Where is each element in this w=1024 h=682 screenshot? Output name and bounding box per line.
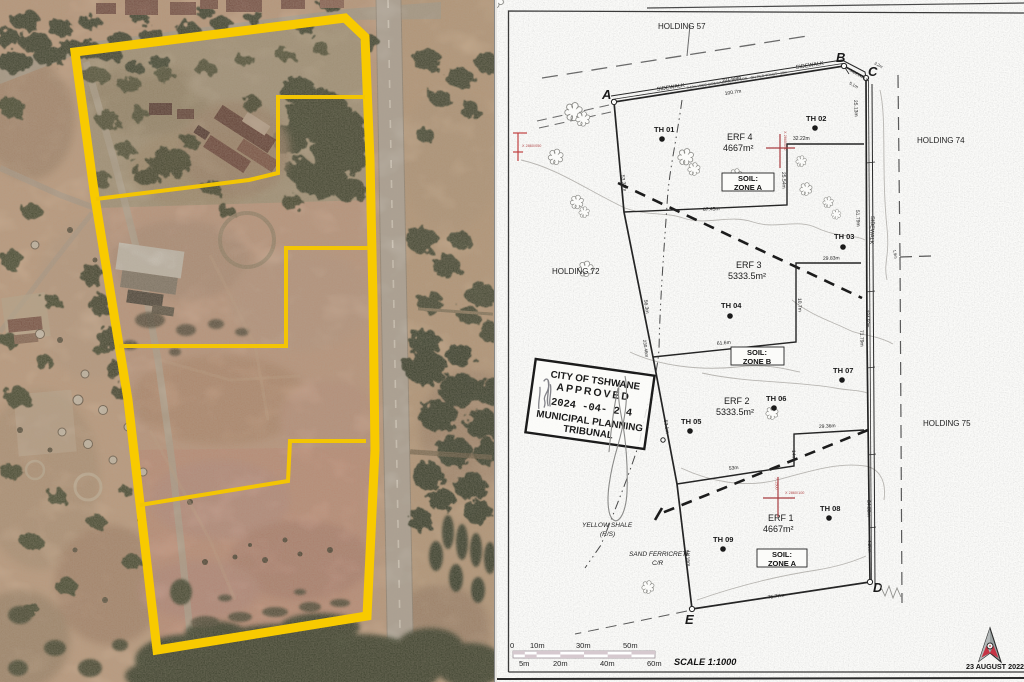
svg-text:29.83m: 29.83m bbox=[823, 255, 840, 262]
svg-text:TH 03: TH 03 bbox=[834, 232, 854, 241]
svg-text:SAND FERRICRETE: SAND FERRICRETE bbox=[629, 551, 691, 558]
svg-text:HOLDING 74: HOLDING 74 bbox=[917, 136, 965, 145]
svg-text:YELLOW SHALE: YELLOW SHALE bbox=[582, 522, 633, 529]
svg-text:25.54m: 25.54m bbox=[780, 172, 787, 189]
svg-text:ERF 4: ERF 4 bbox=[727, 132, 753, 142]
svg-text:5m: 5m bbox=[519, 659, 529, 668]
svg-text:ERF 1: ERF 1 bbox=[768, 513, 794, 523]
svg-text:40m: 40m bbox=[600, 659, 615, 668]
svg-text:SOIL:: SOIL: bbox=[747, 348, 767, 357]
svg-text:60m: 60m bbox=[647, 659, 662, 668]
svg-text:B: B bbox=[836, 50, 845, 65]
svg-text:10.7m: 10.7m bbox=[796, 298, 802, 312]
svg-text:E: E bbox=[685, 612, 694, 627]
svg-text:51.79m: 51.79m bbox=[854, 210, 861, 227]
svg-text:30m: 30m bbox=[576, 641, 591, 650]
svg-text:HOLDING 57: HOLDING 57 bbox=[658, 22, 706, 31]
svg-text:4667m²: 4667m² bbox=[723, 143, 754, 153]
svg-text:234.50m: 234.50m bbox=[865, 310, 871, 328]
svg-text:7.1500: 7.1500 bbox=[775, 478, 779, 490]
svg-text:X 2860/100: X 2860/100 bbox=[785, 491, 804, 495]
svg-text:TH 08: TH 08 bbox=[820, 504, 840, 513]
svg-text:10m: 10m bbox=[530, 641, 545, 650]
svg-text:4.26m: 4.26m bbox=[867, 540, 872, 553]
svg-text:29.36m: 29.36m bbox=[819, 423, 836, 430]
svg-text:TH 05: TH 05 bbox=[681, 417, 701, 426]
svg-text:ZONE A: ZONE A bbox=[768, 559, 797, 568]
svg-text:X 2860/050: X 2860/050 bbox=[783, 131, 787, 150]
svg-text:ZONE A: ZONE A bbox=[734, 183, 763, 192]
svg-text:HOLDING 72: HOLDING 72 bbox=[552, 267, 600, 276]
svg-text:23 AUGUST 2022: 23 AUGUST 2022 bbox=[966, 662, 1024, 671]
svg-text:ZONE B: ZONE B bbox=[743, 357, 772, 366]
svg-text:SOIL:: SOIL: bbox=[738, 174, 758, 183]
svg-text:SIDEWALK: SIDEWALK bbox=[868, 216, 875, 245]
svg-text:14m: 14m bbox=[790, 450, 796, 460]
svg-text:TH 09: TH 09 bbox=[713, 535, 733, 544]
svg-text:C/R: C/R bbox=[652, 560, 664, 567]
svg-text:61.6m: 61.6m bbox=[717, 340, 731, 347]
svg-text:50m: 50m bbox=[623, 641, 638, 650]
svg-text:X 2860/050: X 2860/050 bbox=[522, 144, 541, 148]
svg-text:ERF 3: ERF 3 bbox=[736, 260, 762, 270]
svg-text:67.45m: 67.45m bbox=[703, 206, 720, 213]
svg-text:TH 01: TH 01 bbox=[654, 125, 674, 134]
svg-text:SCALE 1:1000: SCALE 1:1000 bbox=[674, 657, 737, 667]
svg-text:TH 07: TH 07 bbox=[833, 366, 853, 375]
svg-text:53m: 53m bbox=[729, 465, 739, 472]
svg-text:5333.5m²: 5333.5m² bbox=[716, 407, 754, 417]
svg-text:25.13m: 25.13m bbox=[852, 100, 859, 117]
svg-text:SOIL:: SOIL: bbox=[772, 550, 792, 559]
svg-text:32.22m: 32.22m bbox=[793, 136, 810, 142]
svg-text:20m: 20m bbox=[553, 659, 568, 668]
svg-text:A: A bbox=[601, 87, 611, 102]
svg-text:5333.5m²: 5333.5m² bbox=[728, 271, 766, 281]
svg-text:TH 04: TH 04 bbox=[721, 301, 742, 310]
svg-text:ERF 2: ERF 2 bbox=[724, 396, 750, 406]
svg-text:0: 0 bbox=[510, 641, 514, 650]
svg-text:(R/S): (R/S) bbox=[600, 531, 615, 538]
svg-text:HOLDING 75: HOLDING 75 bbox=[923, 419, 971, 428]
svg-text:TH 02: TH 02 bbox=[806, 114, 826, 123]
svg-text:4667m²: 4667m² bbox=[763, 524, 794, 534]
svg-text:64.88m: 64.88m bbox=[865, 500, 872, 517]
svg-text:71.79m: 71.79m bbox=[858, 330, 865, 347]
svg-text:TH 06: TH 06 bbox=[766, 394, 786, 403]
